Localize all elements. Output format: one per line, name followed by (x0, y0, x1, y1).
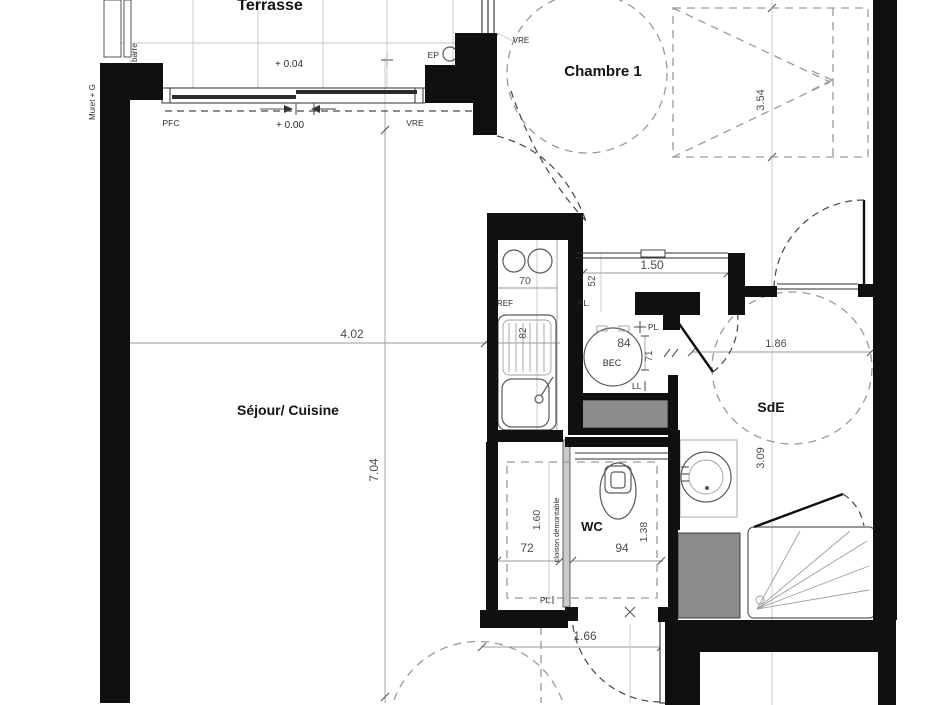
level-terrace: + 0.04 (275, 59, 304, 70)
shower (748, 494, 875, 618)
dim-closet-depth: 1.60 (531, 510, 543, 531)
dim-wc-width: 94 (615, 541, 629, 555)
chambre-door (774, 200, 864, 290)
dim-hall-placard-width: 1.50 (640, 258, 664, 272)
dim-kitchen-counter: 70 (519, 275, 531, 287)
level-interior: + 0.00 (276, 120, 305, 131)
dim-kitchen-sink: 82 (518, 327, 529, 339)
ep-drain-icon (443, 47, 457, 61)
room-label-sejour: Séjour/ Cuisine (237, 402, 339, 418)
dim-sejour-width: 4.02 (340, 327, 364, 341)
dim-chambre-width: 3.54 (755, 89, 767, 110)
vre-label-left: VRE (406, 118, 424, 128)
vre-label-top: VRE (513, 36, 529, 45)
floor-plan-drawing: Terrasse Muret + G barre + 0.04 EP VRE P… (0, 0, 940, 705)
cloison-label: cloison démontable (552, 498, 561, 563)
dim-wc-depth: 1.38 (638, 522, 650, 543)
washbasin (680, 440, 737, 517)
cooktop-burner-icon (503, 250, 525, 272)
terrace-railing (104, 0, 131, 57)
demountable-partition (563, 440, 570, 607)
bec-label: BEC (603, 358, 622, 368)
chambre-placard (673, 8, 868, 157)
dim-sde-width: 1.86 (765, 338, 786, 350)
muret-note: Muret + G (88, 84, 97, 120)
room-label-wc: WC (581, 519, 603, 534)
chambre-threshold (777, 284, 858, 289)
pl-entry-label: PL. (540, 596, 552, 605)
ll-label: LL (632, 381, 642, 391)
dim-bec-depth: 71 (644, 350, 655, 362)
cooktop-burner-icon (528, 249, 552, 273)
ep-label: EP (428, 50, 440, 60)
water-heater-bec (584, 326, 642, 386)
pl-kitchen-label: PL. (578, 299, 590, 308)
dim-sejour-length: 7.04 (367, 458, 381, 482)
barreaudage-note: barre (130, 43, 139, 62)
sde-door (675, 310, 738, 372)
pl-hall-label: PL. (648, 323, 660, 332)
technical-shaft (571, 400, 668, 428)
dim-closet-width: 72 (520, 541, 534, 555)
technical-shaft (678, 533, 740, 618)
pfc-label: PFC (163, 118, 180, 128)
toilet (600, 463, 636, 519)
room-label-sde: SdE (757, 399, 784, 415)
dim-sde-length: 3.09 (755, 447, 767, 468)
chambre-area (507, 0, 868, 290)
room-label-terrasse: Terrasse (237, 0, 303, 14)
room-label-chambre: Chambre 1 (564, 63, 642, 80)
ref-label: REF (497, 299, 513, 308)
dim-bec-width: 84 (617, 336, 631, 350)
floor-plan: Terrasse Muret + G barre + 0.04 EP VRE P… (0, 0, 940, 705)
dim-entry-width: 1.66 (573, 629, 597, 643)
dim-hall-placard-depth: 52 (587, 275, 598, 287)
